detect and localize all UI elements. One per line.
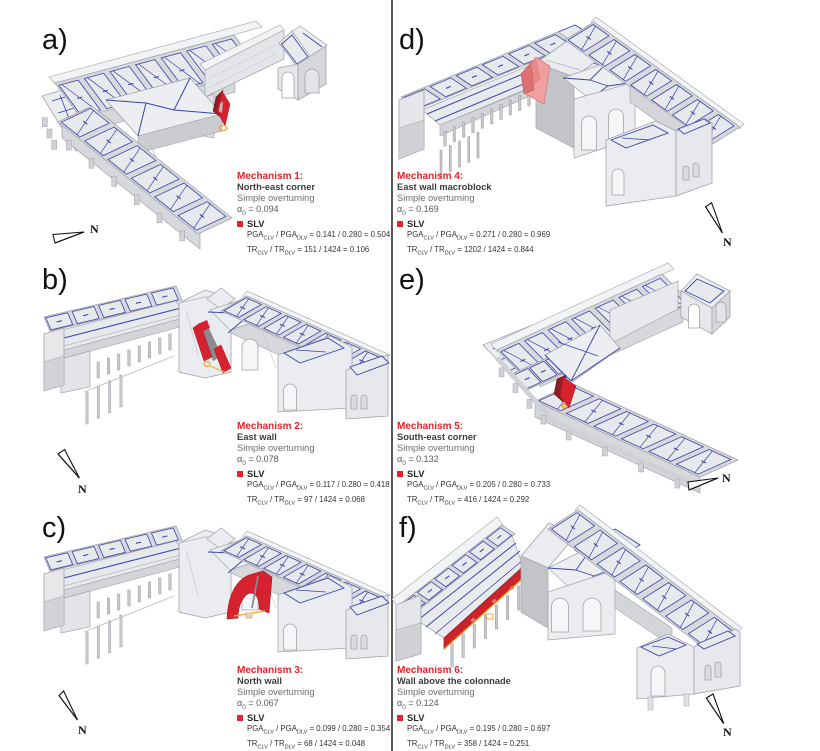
svg-text:N: N <box>78 482 87 496</box>
svg-text:N: N <box>723 725 732 739</box>
svg-text:N: N <box>723 235 732 249</box>
svg-text:N: N <box>78 723 87 737</box>
svg-text:N: N <box>722 471 731 485</box>
svg-text:N: N <box>90 222 99 236</box>
